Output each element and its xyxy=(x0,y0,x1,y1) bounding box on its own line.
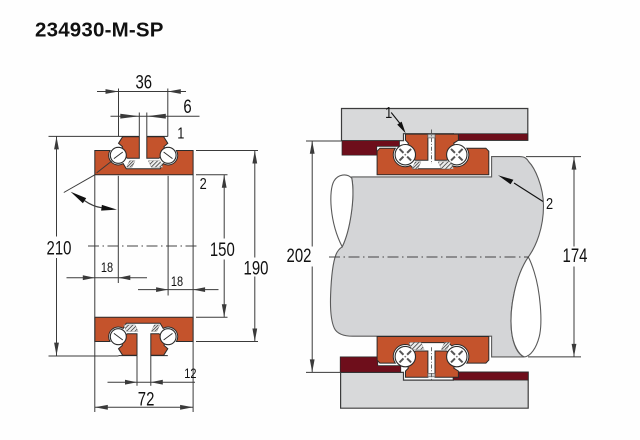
svg-text:6: 6 xyxy=(183,97,191,118)
svg-text:18: 18 xyxy=(171,274,183,290)
svg-text:2: 2 xyxy=(546,196,553,214)
svg-text:1: 1 xyxy=(385,105,392,123)
svg-text:174: 174 xyxy=(563,245,588,266)
svg-text:72: 72 xyxy=(138,389,155,410)
svg-text:150: 150 xyxy=(210,239,235,260)
svg-text:2: 2 xyxy=(200,176,207,194)
svg-text:36: 36 xyxy=(136,72,153,93)
svg-text:202: 202 xyxy=(287,245,312,266)
svg-text:234930-M-SP: 234930-M-SP xyxy=(35,18,164,41)
svg-text:18: 18 xyxy=(101,260,113,276)
svg-text:12: 12 xyxy=(184,366,196,382)
svg-text:210: 210 xyxy=(47,238,72,259)
svg-text:190: 190 xyxy=(244,258,269,279)
svg-text:1: 1 xyxy=(177,125,184,143)
